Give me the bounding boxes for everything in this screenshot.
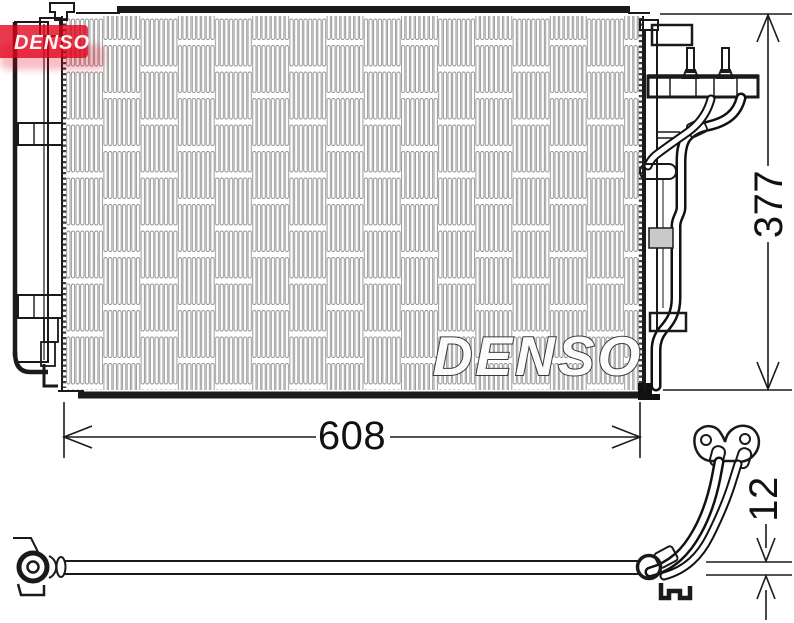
mounting-bracket-lower <box>18 295 62 366</box>
pipe-bracket-flange <box>694 426 759 470</box>
dimension-width-label: 608 <box>318 414 386 458</box>
denso-logo: DENSO <box>0 25 104 70</box>
pipe-bracket-assembly <box>638 426 759 598</box>
dimension-pipe-label: 12 <box>742 476 786 522</box>
denso-center-watermark: DENSO <box>433 325 644 387</box>
technical-drawing: 608 377 <box>0 0 794 623</box>
foot-bracket <box>661 583 690 598</box>
flange-hole-right <box>740 434 750 444</box>
mounting-stud-left <box>683 48 698 78</box>
pipe-cone-fitting <box>49 556 66 578</box>
front-view: 608 377 <box>15 3 792 458</box>
denso-logo-text: DENSO <box>14 32 90 54</box>
mounting-stud-right <box>718 48 733 78</box>
receiver-drier <box>15 18 62 386</box>
dimension-pipe: 12 <box>706 476 792 620</box>
dimension-width: 608 <box>64 402 640 458</box>
ring-upper-hook <box>13 538 38 552</box>
pipe-ring-fitting <box>19 553 47 581</box>
bracket-tubes <box>650 462 738 576</box>
right-header-tank <box>640 20 758 390</box>
flange-hole-left <box>701 435 711 445</box>
side-view: 12 <box>13 426 792 620</box>
ring-lower-hook <box>18 584 44 595</box>
dimension-height-label: 377 <box>747 170 791 238</box>
drier-bottom-hook <box>44 364 58 386</box>
fitting-block <box>649 228 673 248</box>
mounting-bracket-upper <box>18 123 62 145</box>
product-drawing-canvas: 608 377 <box>0 0 794 623</box>
side-pipe <box>64 561 640 574</box>
